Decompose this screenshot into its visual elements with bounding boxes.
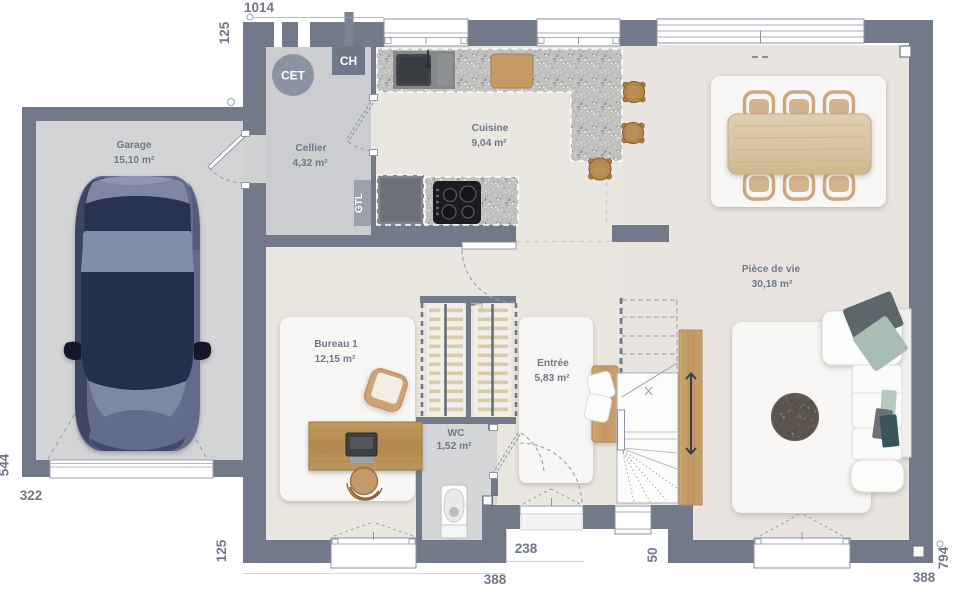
svg-text:Garage: Garage	[116, 140, 151, 151]
svg-text:322: 322	[20, 488, 43, 503]
svg-text:388: 388	[484, 572, 507, 587]
svg-text:30,18 m²: 30,18 m²	[752, 279, 793, 290]
svg-text:5,83 m²: 5,83 m²	[534, 373, 570, 384]
svg-text:12,15 m²: 12,15 m²	[315, 354, 356, 365]
svg-text:Cellier: Cellier	[295, 143, 326, 154]
svg-text:15,10 m²: 15,10 m²	[114, 155, 155, 166]
svg-text:125: 125	[217, 21, 232, 44]
svg-text:WC: WC	[448, 428, 466, 439]
svg-text:544: 544	[0, 453, 12, 476]
svg-text:GTL: GTL	[354, 193, 365, 213]
svg-text:Cuisine: Cuisine	[472, 123, 509, 134]
svg-text:238: 238	[515, 541, 538, 556]
svg-text:9,04 m²: 9,04 m²	[471, 138, 507, 149]
svg-text:388: 388	[913, 570, 936, 585]
svg-text:Bureau 1: Bureau 1	[314, 339, 358, 350]
svg-text:CH: CH	[340, 54, 357, 68]
svg-text:1014: 1014	[244, 0, 275, 15]
svg-text:4,32 m²: 4,32 m²	[292, 158, 328, 169]
svg-text:1,52 m²: 1,52 m²	[436, 441, 472, 452]
svg-text:Pièce de vie: Pièce de vie	[742, 264, 801, 275]
svg-text:125: 125	[214, 539, 229, 562]
svg-text:794: 794	[936, 546, 951, 569]
svg-text:CET: CET	[281, 69, 306, 83]
svg-text:Entrée: Entrée	[537, 358, 569, 369]
svg-text:50: 50	[645, 547, 660, 562]
